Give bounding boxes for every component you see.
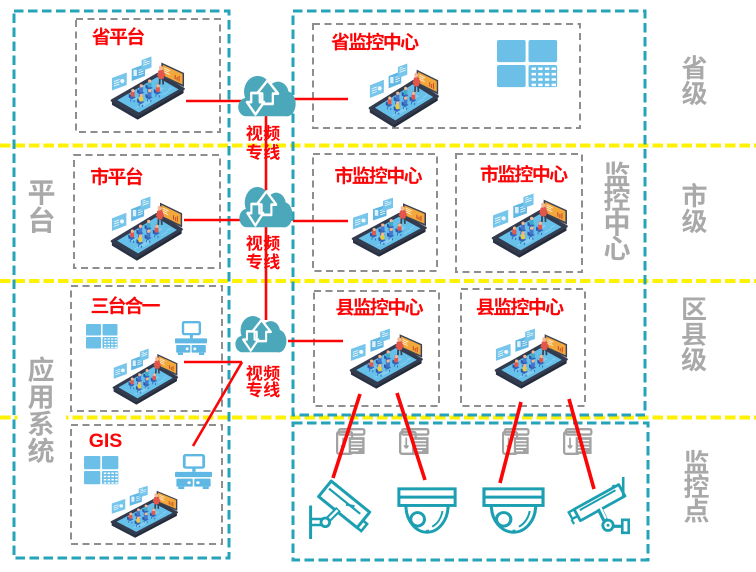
svg-text:GIS: GIS (89, 430, 123, 452)
